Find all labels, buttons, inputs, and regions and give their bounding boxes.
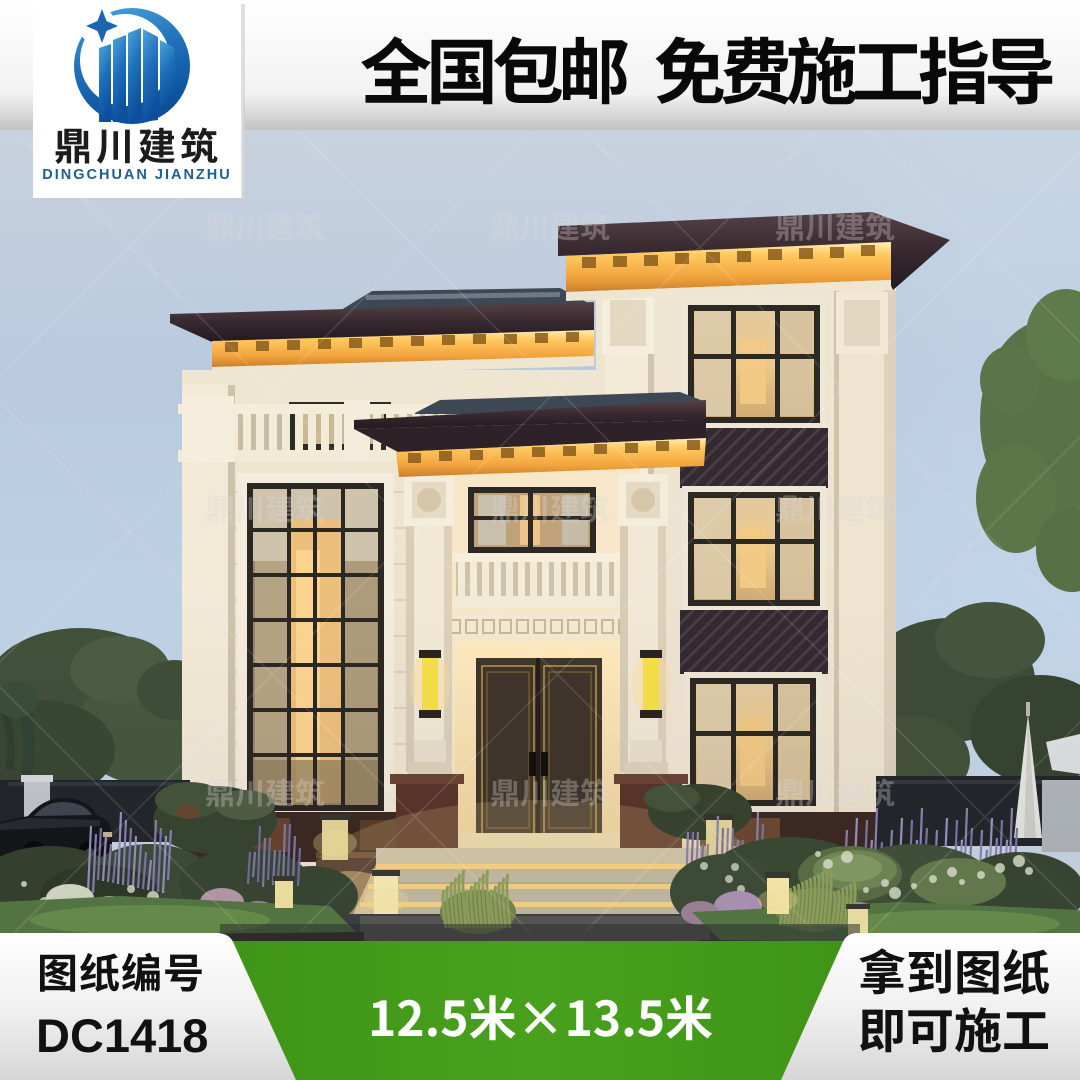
svg-text:DC1418: DC1418 xyxy=(36,1009,208,1062)
svg-text:DINGCHUAN JIANZHU: DINGCHUAN JIANZHU xyxy=(42,167,231,183)
